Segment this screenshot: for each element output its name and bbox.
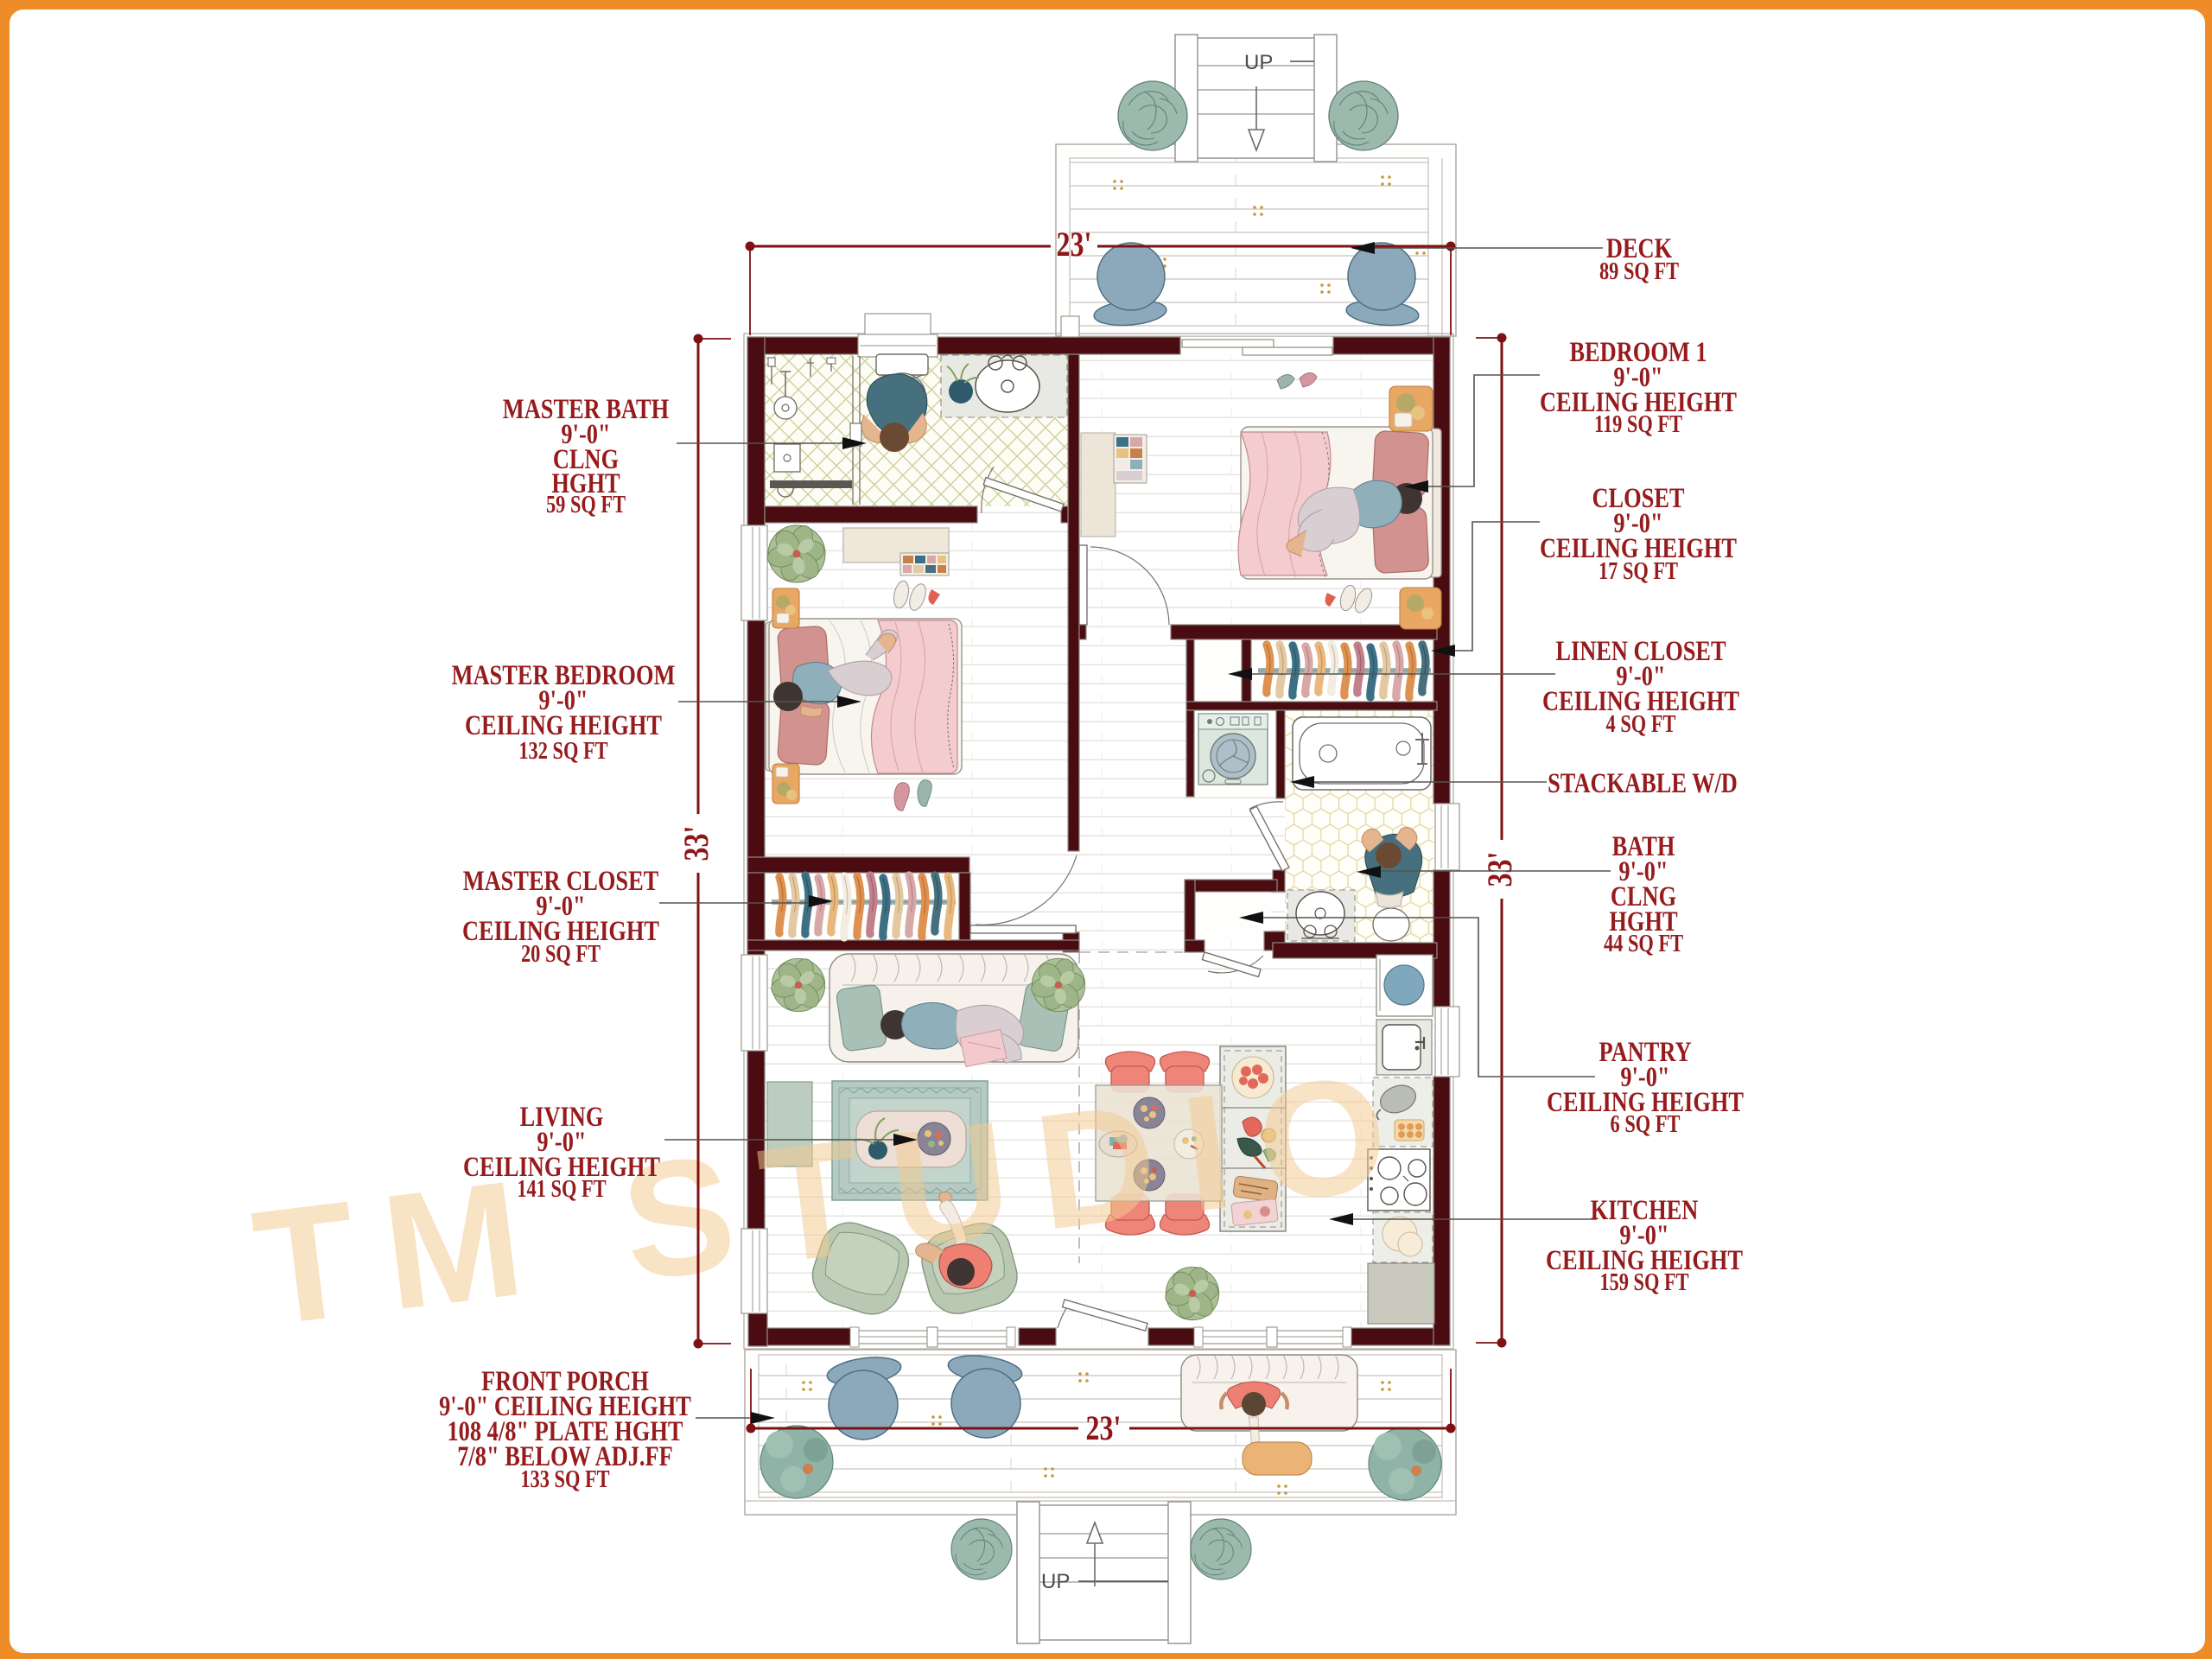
svg-text:STACKABLE W/D: STACKABLE W/D (1548, 767, 1738, 798)
svg-text:119 SQ FT: 119 SQ FT (1594, 411, 1682, 438)
svg-text:59 SQ FT: 59 SQ FT (546, 492, 626, 518)
svg-text:UP: UP (1244, 51, 1273, 74)
svg-text:33': 33' (1481, 852, 1519, 887)
svg-text:6 SQ FT: 6 SQ FT (1611, 1111, 1681, 1138)
svg-text:89 SQ FT: 89 SQ FT (1599, 258, 1679, 285)
svg-text:159 SQ FT: 159 SQ FT (1599, 1269, 1688, 1296)
svg-text:132 SQ FT: 132 SQ FT (518, 738, 607, 765)
svg-text:UP: UP (1041, 1570, 1070, 1593)
svg-text:44 SQ FT: 44 SQ FT (1604, 931, 1683, 957)
svg-text:23': 23' (1086, 1409, 1122, 1447)
svg-text:33': 33' (677, 826, 715, 861)
svg-text:17 SQ FT: 17 SQ FT (1599, 558, 1678, 585)
svg-text:CEILING HEIGHT: CEILING HEIGHT (465, 709, 662, 741)
svg-text:141 SQ FT: 141 SQ FT (517, 1176, 606, 1203)
svg-text:20 SQ FT: 20 SQ FT (521, 941, 601, 968)
svg-text:133 SQ FT: 133 SQ FT (520, 1466, 609, 1493)
svg-text:4 SQ FT: 4 SQ FT (1606, 711, 1676, 738)
svg-text:23': 23' (1057, 226, 1092, 264)
